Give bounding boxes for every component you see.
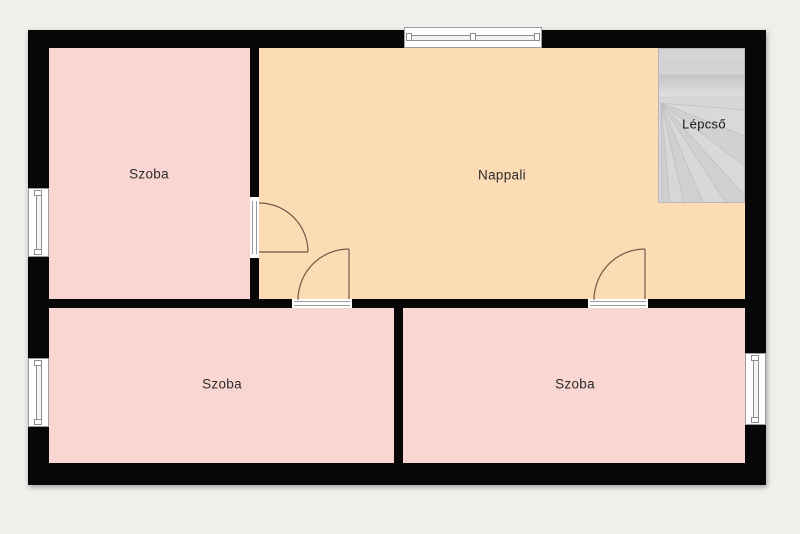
room-label-szoba-top-left: Szoba <box>129 167 169 182</box>
door-opening-szoba-bottom-left <box>292 299 352 308</box>
window-mullion <box>751 355 759 361</box>
window-glass <box>36 190 42 255</box>
window-mullion <box>470 33 476 41</box>
window-left-lower <box>28 358 49 427</box>
room-label-szoba-bottom-right: Szoba <box>555 377 595 392</box>
window-mullion <box>34 419 42 425</box>
door-frame <box>294 301 350 306</box>
window-mullion <box>406 33 412 41</box>
window-mullion <box>751 417 759 423</box>
window-top <box>404 27 542 48</box>
window-right <box>745 353 766 425</box>
window-mullion <box>34 360 42 366</box>
window-mullion <box>534 33 540 41</box>
stairs-label: Lépcső <box>682 117 726 132</box>
door-opening-szoba-bottom-right <box>588 299 648 308</box>
room-label-szoba-bottom-left: Szoba <box>202 377 242 392</box>
window-glass <box>753 355 759 423</box>
door-frame <box>590 301 646 306</box>
window-glass <box>36 360 42 425</box>
window-left-upper <box>28 188 49 257</box>
room-label-nappali: Nappali <box>478 168 526 183</box>
window-mullion <box>34 190 42 196</box>
door-frame <box>252 201 257 254</box>
floor-plan: Szoba Nappali Szoba Szoba Lépcső <box>0 0 800 534</box>
door-opening-szoba-top-left <box>250 197 259 258</box>
window-mullion <box>34 249 42 255</box>
